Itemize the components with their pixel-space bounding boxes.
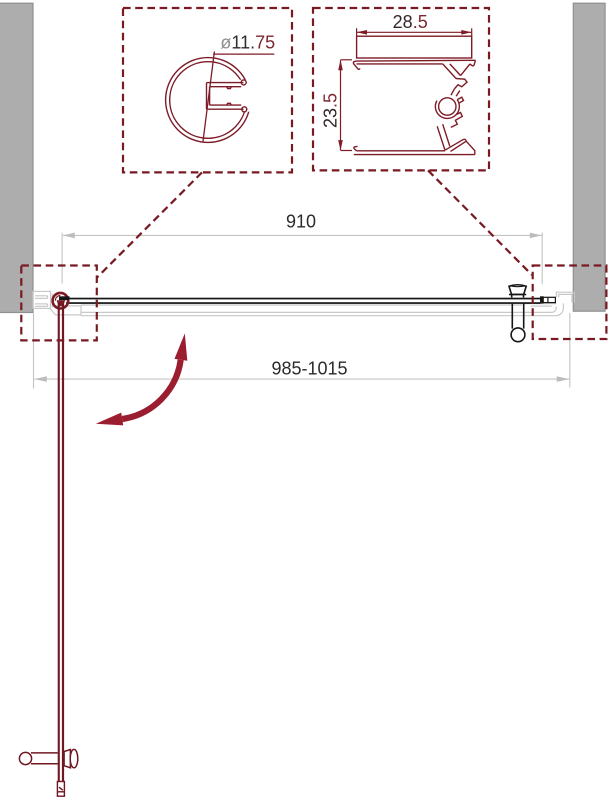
svg-text:28.5: 28.5 — [393, 12, 428, 32]
svg-text:ø11.75: ø11.75 — [220, 32, 275, 52]
svg-text:23.5: 23.5 — [321, 93, 341, 128]
svg-text:985-1015: 985-1015 — [271, 359, 347, 379]
svg-text:910: 910 — [286, 212, 316, 232]
